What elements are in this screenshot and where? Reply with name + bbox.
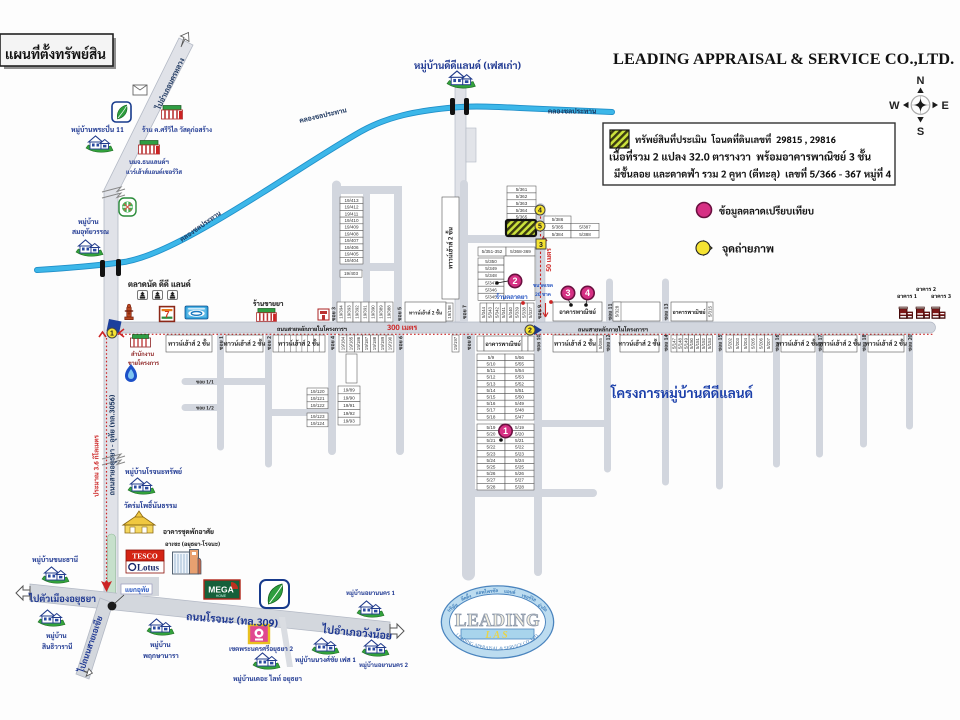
svg-text:19/90: 19/90 [343, 395, 355, 400]
svg-text:5/23: 5/23 [487, 451, 496, 456]
svg-text:19/403: 19/403 [344, 271, 358, 276]
svg-text:4: 4 [585, 288, 590, 298]
svg-text:5/47: 5/47 [515, 414, 524, 419]
svg-text:TESCO: TESCO [132, 552, 158, 561]
svg-text:5/17: 5/17 [487, 408, 496, 413]
svg-text:5/12: 5/12 [487, 375, 496, 380]
svg-text:5/25: 5/25 [487, 465, 496, 470]
svg-text:5/342: 5/342 [495, 306, 500, 318]
svg-text:19/121: 19/121 [310, 396, 324, 401]
svg-text:5/152: 5/152 [701, 337, 706, 349]
svg-text:19/186: 19/186 [356, 336, 361, 350]
svg-text:5/362: 5/362 [516, 194, 528, 199]
svg-text:19/412: 19/412 [344, 205, 358, 210]
svg-text:5/16: 5/16 [487, 401, 496, 406]
svg-text:5/205: 5/205 [751, 337, 756, 349]
svg-text:19/410: 19/410 [344, 218, 358, 223]
svg-text:5/348: 5/348 [485, 273, 497, 278]
svg-text:5/20: 5/20 [515, 432, 524, 437]
svg-text:5/349: 5/349 [485, 266, 497, 271]
svg-text:5/20: 5/20 [487, 432, 496, 437]
svg-text:19/409: 19/409 [344, 225, 358, 230]
svg-text:5/338: 5/338 [522, 306, 527, 318]
svg-text:19/184: 19/184 [341, 336, 346, 350]
svg-text:Lotus: Lotus [137, 563, 160, 573]
svg-text:5/345: 5/345 [485, 294, 497, 299]
svg-text:5/26: 5/26 [487, 471, 496, 476]
svg-text:19/89: 19/89 [343, 388, 355, 393]
svg-text:5/351-352: 5/351-352 [482, 249, 503, 254]
svg-text:5/350: 5/350 [485, 259, 497, 264]
svg-text:LAS: LAS [484, 630, 509, 641]
svg-text:5/153: 5/153 [707, 337, 712, 349]
svg-text:5/085: 5/085 [598, 337, 603, 349]
svg-text:19/120: 19/120 [310, 389, 324, 394]
svg-text:19/190: 19/190 [388, 336, 393, 350]
svg-text:19/406: 19/406 [344, 245, 358, 250]
svg-text:5/56: 5/56 [515, 355, 524, 360]
svg-text:5/388: 5/388 [579, 232, 591, 237]
svg-text:5/204: 5/204 [743, 337, 748, 349]
svg-text:5/10: 5/10 [487, 362, 496, 367]
svg-text:5/55: 5/55 [515, 362, 524, 367]
svg-text:19/187: 19/187 [364, 336, 369, 350]
svg-text:5/11: 5/11 [487, 368, 496, 373]
svg-text:5/206: 5/206 [758, 337, 763, 349]
svg-text:5/202: 5/202 [728, 337, 733, 349]
svg-text:5/24: 5/24 [487, 458, 496, 463]
svg-text:19/405: 19/405 [344, 252, 358, 257]
svg-text:5/19: 5/19 [515, 425, 524, 430]
svg-text:5/28: 5/28 [515, 484, 524, 489]
svg-text:5/18: 5/18 [487, 414, 496, 419]
svg-text:2: 2 [512, 276, 517, 286]
svg-text:5/24: 5/24 [515, 458, 524, 463]
svg-text:5/346: 5/346 [485, 287, 497, 292]
svg-text:5/51: 5/51 [515, 388, 524, 393]
svg-text:19/197: 19/197 [453, 336, 458, 350]
svg-text:5/337: 5/337 [528, 306, 533, 318]
svg-text:S: S [917, 126, 924, 138]
svg-text:5/368-369: 5/368-369 [510, 249, 531, 254]
svg-text:5/151: 5/151 [695, 337, 700, 349]
svg-text:19/388: 19/388 [387, 305, 392, 319]
svg-text:19/93: 19/93 [343, 419, 355, 424]
svg-text:19/188: 19/188 [372, 336, 377, 350]
svg-text:19/92: 19/92 [343, 411, 355, 416]
svg-text:3: 3 [565, 288, 570, 298]
svg-text:5/341: 5/341 [501, 306, 506, 318]
svg-text:1: 1 [503, 426, 508, 436]
svg-text:5/328: 5/328 [615, 305, 620, 317]
svg-text:5/50: 5/50 [515, 395, 524, 400]
svg-text:19/91: 19/91 [343, 403, 355, 408]
svg-text:5/344: 5/344 [481, 306, 486, 318]
svg-text:7: 7 [164, 310, 169, 320]
svg-text:1: 1 [110, 331, 114, 338]
svg-text:5/9: 5/9 [488, 355, 495, 360]
svg-text:19/411: 19/411 [345, 211, 359, 216]
svg-text:5/339: 5/339 [515, 306, 520, 318]
svg-text:19/413: 19/413 [344, 198, 358, 203]
svg-text:5/149: 5/149 [683, 337, 688, 349]
svg-text:5/27: 5/27 [515, 478, 524, 483]
svg-text:5/22: 5/22 [487, 445, 496, 450]
svg-text:19/189: 19/189 [380, 336, 385, 350]
svg-text:5/54: 5/54 [515, 368, 524, 373]
svg-text:5/52: 5/52 [515, 381, 524, 386]
svg-text:5/14: 5/14 [487, 388, 496, 393]
svg-text:LEADING: LEADING [455, 610, 540, 630]
svg-text:5/26: 5/26 [515, 471, 524, 476]
svg-text:5/148: 5/148 [678, 337, 683, 349]
svg-text:5/49: 5/49 [515, 401, 524, 406]
svg-text:5/27: 5/27 [487, 478, 496, 483]
svg-text:5/25: 5/25 [515, 465, 524, 470]
svg-text:5/364: 5/364 [516, 208, 528, 213]
svg-text:5/23: 5/23 [515, 451, 524, 456]
svg-text:5/15: 5/15 [487, 395, 496, 400]
svg-text:19/407: 19/407 [344, 238, 358, 243]
svg-text:W: W [889, 100, 900, 112]
svg-text:19/389: 19/389 [379, 305, 384, 319]
svg-text:19/198: 19/198 [447, 305, 452, 319]
svg-text:19/394: 19/394 [339, 305, 344, 319]
svg-text:5/387: 5/387 [579, 225, 591, 230]
svg-text:19/393: 19/393 [347, 305, 352, 319]
svg-text:5/150: 5/150 [689, 337, 694, 349]
svg-text:5/21: 5/21 [515, 438, 524, 443]
svg-text:19/390: 19/390 [371, 305, 376, 319]
svg-text:5/28: 5/28 [487, 484, 496, 489]
svg-text:5/385: 5/385 [552, 225, 564, 230]
svg-text:5/48: 5/48 [515, 408, 524, 413]
svg-text:5/361: 5/361 [516, 187, 528, 192]
svg-text:19/122: 19/122 [310, 403, 324, 408]
svg-text:5/22: 5/22 [515, 445, 524, 450]
svg-text:5/207: 5/207 [766, 337, 771, 349]
svg-text:LEADING APPRAISAL & SERVICE CO: LEADING APPRAISAL & SERVICE CO.,LTD. [613, 49, 954, 68]
svg-text:19/392: 19/392 [355, 305, 360, 319]
svg-text:19/404: 19/404 [344, 258, 358, 263]
svg-text:5/340: 5/340 [508, 306, 513, 318]
svg-text:HOME: HOME [216, 594, 227, 598]
svg-text:5/343: 5/343 [488, 306, 493, 318]
svg-text:3: 3 [539, 242, 543, 249]
svg-text:5/315: 5/315 [708, 305, 713, 317]
svg-text:19/124: 19/124 [310, 421, 324, 426]
svg-text:19/408: 19/408 [344, 231, 358, 236]
svg-text:5/363: 5/363 [516, 201, 528, 206]
svg-text:19/185: 19/185 [348, 336, 353, 350]
svg-text:5/386: 5/386 [552, 217, 564, 222]
svg-text:19/123: 19/123 [310, 414, 324, 419]
svg-text:5/203: 5/203 [735, 337, 740, 349]
svg-text:E: E [942, 100, 949, 112]
svg-text:5/13: 5/13 [487, 381, 496, 386]
svg-text:4: 4 [538, 208, 542, 215]
svg-text:19/391: 19/391 [363, 305, 368, 319]
svg-text:5/19: 5/19 [487, 425, 496, 430]
svg-text:5/53: 5/53 [515, 375, 524, 380]
svg-text:5/384: 5/384 [552, 232, 564, 237]
svg-text:5: 5 [538, 224, 542, 231]
svg-text:5/147: 5/147 [672, 337, 677, 349]
svg-text:5/21: 5/21 [487, 438, 496, 443]
svg-text:2: 2 [528, 328, 532, 335]
svg-text:MEGA: MEGA [208, 585, 234, 595]
svg-text:N: N [917, 75, 925, 87]
